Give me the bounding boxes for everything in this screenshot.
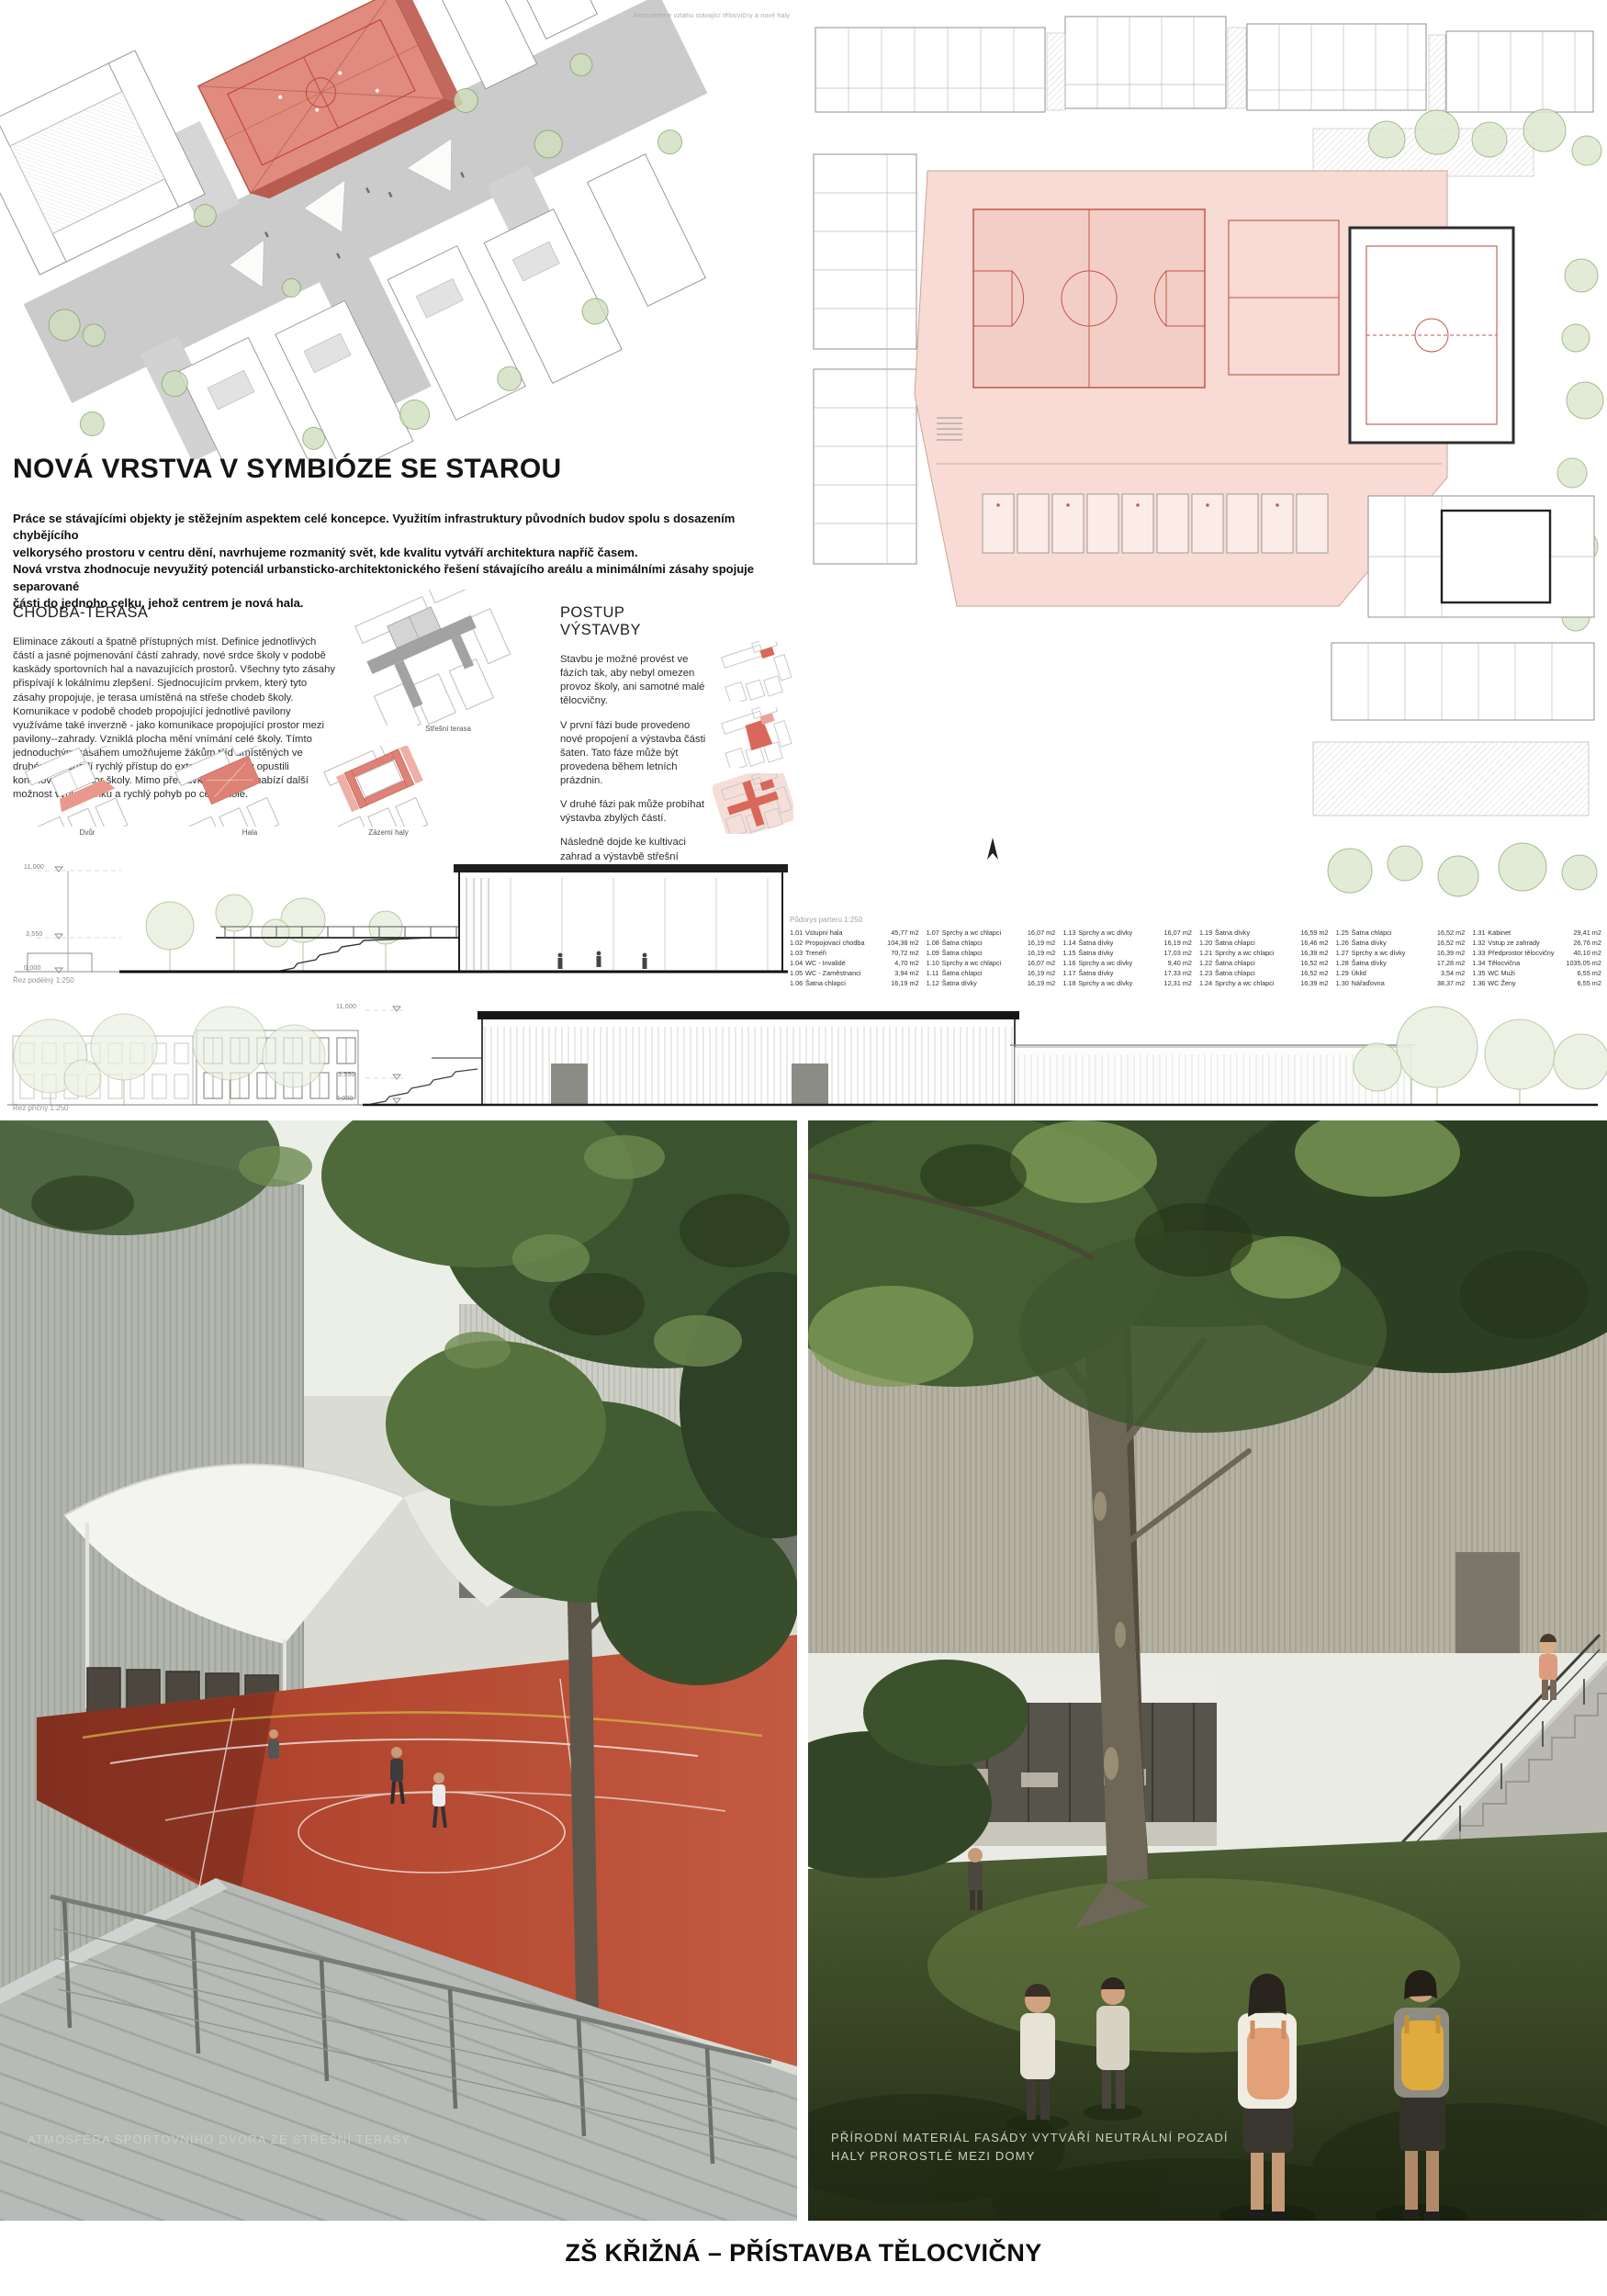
- section-longitudinal-drawing: [0, 843, 790, 990]
- room-id: 1.10: [927, 958, 942, 968]
- legend-room-row: 1.27 Sprchy a wc dívky 16,39 m2: [1336, 948, 1466, 958]
- render-right-caption-line1: PŘÍRODNÍ MATERIÁL FASÁDY VYTVÁŘÍ NEUTRÁL…: [831, 2129, 1290, 2147]
- room-id: 1.17: [1062, 968, 1078, 978]
- legend-room-row: 1.17 Šatna dívky 17,33 m2: [1062, 968, 1192, 978]
- room-id: 1.03: [790, 948, 805, 958]
- room-name: Šatna dívky: [1078, 948, 1163, 958]
- room-id: 1.25: [1336, 928, 1352, 938]
- room-name: Předprostor tělocvičny: [1488, 948, 1573, 958]
- legend-room-row: 1.34 Tělocvična 1035,05 m2: [1472, 958, 1601, 968]
- room-id: 1.28: [1336, 958, 1352, 968]
- room-area: 3,54 m2: [1441, 968, 1465, 978]
- room-area: 6,55 m2: [1578, 968, 1601, 978]
- room-name: Šatna dívky: [1078, 968, 1163, 978]
- room-name: Sprchy a wc dívky: [1078, 928, 1163, 938]
- diagram-label-hala: Hala: [213, 828, 287, 837]
- room-area: 6,55 m2: [1578, 978, 1601, 988]
- room-name: Vstup ze zahrady: [1488, 938, 1573, 948]
- room-area: 16,07 m2: [1028, 928, 1055, 938]
- legend-room-row: 1.33 Předprostor tělocvičny 40,10 m2: [1472, 948, 1601, 958]
- room-name: Úklid: [1352, 968, 1441, 978]
- room-area: 16,46 m2: [1300, 938, 1328, 948]
- legend-room-row: 1.13 Sprchy a wc dívky 16,07 m2: [1062, 928, 1192, 938]
- room-area: 16,19 m2: [1028, 968, 1055, 978]
- postup-paragraph: Stavbu je možné provést ve fázích tak, a…: [560, 653, 707, 709]
- legend-room-row: 1.04 WC - Invalidé 4,70 m2: [790, 958, 919, 968]
- room-area: 16,52 m2: [1437, 928, 1465, 938]
- room-name: Šatna chlapci: [942, 968, 1028, 978]
- postup-paragraph: V první fázi bude provedeno nové propoje…: [560, 719, 707, 789]
- room-area: 16,52 m2: [1300, 958, 1328, 968]
- legend-room-row: 1.31 Kabinet 29,41 m2: [1472, 928, 1601, 938]
- section-1-label: Řez podélný 1:250: [13, 976, 74, 985]
- diagram-label-zazemi: Zázemí haly: [347, 828, 430, 837]
- legend-room-row: 1.36 WC Ženy 6,55 m2: [1472, 978, 1601, 988]
- legend-rooms: 1.01 Vstupní hala 45,77 m2 1.02 Propojov…: [790, 928, 1601, 988]
- legend-room-row: 1.32 Vstup ze zahrady 26,76 m2: [1472, 938, 1601, 948]
- room-area: 104,38 m2: [887, 938, 918, 948]
- room-id: 1.19: [1199, 928, 1215, 938]
- diagram-zazemi-haly: [317, 746, 459, 827]
- room-area: 29,41 m2: [1574, 928, 1601, 938]
- room-area: 16,19 m2: [1028, 948, 1055, 958]
- legend-room-row: 1.06 Šatna chlapci 16,19 m2: [790, 978, 919, 988]
- legend-room-row: 1.30 Nářaďovna 38,37 m2: [1336, 978, 1466, 988]
- room-id: 1.32: [1472, 938, 1488, 948]
- floor-plan-drawing: [799, 0, 1607, 909]
- room-name: WC Ženy: [1488, 978, 1577, 988]
- room-name: Šatna chlapci: [805, 978, 891, 988]
- room-id: 1.27: [1336, 948, 1352, 958]
- room-id: 1.20: [1199, 938, 1215, 948]
- room-area: 16,07 m2: [1028, 958, 1055, 968]
- legend-room-row: 1.09 Šatna chlapci 16,19 m2: [927, 948, 1056, 958]
- legend-room-row: 1.16 Sprchy a wc dívky 9,40 m2: [1062, 958, 1192, 968]
- diagram-phase-2: [713, 707, 793, 768]
- diagram-phase-1: [713, 641, 793, 702]
- room-area: 16,19 m2: [891, 978, 918, 988]
- room-name: Sprchy a wc dívky: [1078, 978, 1163, 988]
- room-name: Šatna dívky: [1352, 958, 1437, 968]
- room-id: 1.31: [1472, 928, 1488, 938]
- legend-room-row: 1.25 Šatna chlapci 16,52 m2: [1336, 928, 1466, 938]
- chodba-heading: CHODBA-TERASA: [13, 604, 338, 622]
- level-3550-sec1: 3,550: [26, 931, 43, 938]
- section-transverse-drawing: [0, 999, 1607, 1117]
- level-0000-sec2: 0,000: [336, 1096, 354, 1102]
- legend-room-row: 1.24 Sprchy a wc chlapci 16,39 m2: [1199, 978, 1329, 988]
- legend-room-row: 1.26 Šatna dívky 16,52 m2: [1336, 938, 1466, 948]
- room-id: 1.33: [1472, 948, 1488, 958]
- room-id: 1.29: [1336, 968, 1352, 978]
- room-area: 16,59 m2: [1300, 928, 1328, 938]
- section-2-label: Řez příčný 1:250: [13, 1104, 68, 1112]
- room-area: 26,76 m2: [1574, 938, 1601, 948]
- room-id: 1.02: [790, 938, 805, 948]
- room-name: Šatna dívky: [1215, 928, 1300, 938]
- room-area: 16,39 m2: [1300, 948, 1328, 958]
- room-id: 1.14: [1062, 938, 1078, 948]
- legend-title: Půdorys parteru 1:250: [790, 916, 1601, 924]
- postup-heading: POSTUP VÝSTAVBY: [560, 604, 707, 639]
- room-id: 1.04: [790, 958, 805, 968]
- room-name: Sprchy a wc chlapci: [942, 958, 1028, 968]
- legend-room-row: 1.14 Šatna dívky 16,19 m2: [1062, 938, 1192, 948]
- room-id: 1.07: [927, 928, 942, 938]
- room-name: Sprchy a wc chlapci: [942, 928, 1028, 938]
- room-name: Sprchy a wc dívky: [1352, 948, 1437, 958]
- room-name: Šatna dívky: [1078, 938, 1163, 948]
- room-name: Šatna dívky: [942, 978, 1028, 988]
- axonometric-site-illustration: [0, 0, 799, 459]
- axon-annotation: Axonometrie vztahu stávající tělocvičny …: [632, 13, 790, 19]
- legend-room-row: 1.28 Šatna dívky 17,28 m2: [1336, 958, 1466, 968]
- room-name: Kabinet: [1488, 928, 1573, 938]
- room-id: 1.01: [790, 928, 805, 938]
- room-id: 1.23: [1199, 968, 1215, 978]
- legend-room-row: 1.12 Šatna dívky 16,19 m2: [927, 978, 1056, 988]
- room-name: Vstupní hala: [805, 928, 891, 938]
- legend-room-row: 1.10 Sprchy a wc chlapci 16,07 m2: [927, 958, 1056, 968]
- level-11000-sec1: 11,000: [24, 864, 44, 871]
- room-name: Tělocvična: [1488, 958, 1566, 968]
- room-area: 1035,05 m2: [1566, 958, 1601, 968]
- room-name: Šatna chlapci: [942, 938, 1028, 948]
- legend-room-row: 1.19 Šatna dívky 16,59 m2: [1199, 928, 1329, 938]
- room-area: 4,70 m2: [894, 958, 918, 968]
- room-area: 45,77 m2: [891, 928, 918, 938]
- room-area: 3,94 m2: [894, 968, 918, 978]
- room-area: 16,52 m2: [1437, 938, 1465, 948]
- room-name: Šatna chlapci: [1215, 968, 1300, 978]
- room-id: 1.34: [1472, 958, 1488, 968]
- legend-room-row: 1.21 Sprchy a wc chlapci 16,39 m2: [1199, 948, 1329, 958]
- room-name: Nářaďovna: [1352, 978, 1437, 988]
- room-name: Šatna chlapci: [942, 948, 1028, 958]
- room-name: Propojovací chodba: [805, 938, 887, 948]
- room-name: Šatna chlapci: [1215, 938, 1300, 948]
- legend-room-row: 1.35 WC Muži 6,55 m2: [1472, 968, 1601, 978]
- legend-room-row: 1.03 Trenéři 70,72 m2: [790, 948, 919, 958]
- legend-room-row: 1.08 Šatna chlapci 16,19 m2: [927, 938, 1056, 948]
- room-area: 40,10 m2: [1574, 948, 1601, 958]
- render-right-caption: PŘÍRODNÍ MATERIÁL FASÁDY VYTVÁŘÍ NEUTRÁL…: [831, 2129, 1290, 2166]
- room-id: 1.30: [1336, 978, 1352, 988]
- room-area: 38,37 m2: [1437, 978, 1465, 988]
- legend-room-row: 1.22 Šatna chlapci 16,52 m2: [1199, 958, 1329, 968]
- room-name: Sprchy a wc chlapci: [1215, 978, 1300, 988]
- room-id: 1.16: [1062, 958, 1078, 968]
- room-id: 1.22: [1199, 958, 1215, 968]
- room-area: 16,19 m2: [1028, 978, 1055, 988]
- room-area: 16,39 m2: [1437, 948, 1465, 958]
- room-area: 70,72 m2: [891, 948, 918, 958]
- room-id: 1.36: [1472, 978, 1488, 988]
- board-footer-title: ZŠ KŘIŽNÁ – PŘÍSTAVBA TĚLOCVIČNY: [0, 2239, 1607, 2268]
- level-3550-sec2: 3,550: [338, 1072, 355, 1078]
- room-id: 1.06: [790, 978, 805, 988]
- room-name: Trenéři: [805, 948, 891, 958]
- room-area: 16,39 m2: [1300, 978, 1328, 988]
- legend-room-row: 1.02 Propojovací chodba 104,38 m2: [790, 938, 919, 948]
- legend-room-row: 1.18 Sprchy a wc dívky 12,31 m2: [1062, 978, 1192, 988]
- legend-room-row: 1.15 Šatna dívky 17,03 m2: [1062, 948, 1192, 958]
- room-id: 1.12: [927, 978, 942, 988]
- room-id: 1.15: [1062, 948, 1078, 958]
- room-name: Šatna chlapci: [1352, 928, 1437, 938]
- diagram-phase-3: [713, 773, 793, 834]
- room-area: 17,03 m2: [1164, 948, 1192, 958]
- room-name: Sprchy a wc chlapci: [1215, 948, 1300, 958]
- legend-room-row: 1.20 Šatna chlapci 16,46 m2: [1199, 938, 1329, 948]
- room-id: 1.24: [1199, 978, 1215, 988]
- level-11000-sec2: 11,000: [336, 1004, 356, 1010]
- room-id: 1.09: [927, 948, 942, 958]
- room-id: 1.18: [1062, 978, 1078, 988]
- room-area: 17,33 m2: [1164, 968, 1192, 978]
- room-id: 1.05: [790, 968, 805, 978]
- room-id: 1.13: [1062, 928, 1078, 938]
- diagram-hala: [170, 746, 308, 827]
- room-legend: Půdorys parteru 1:250 1.01 Vstupní hala …: [790, 916, 1601, 988]
- diagram-label-dvur: Dvůr: [51, 828, 124, 837]
- room-name: Sprchy a wc dívky: [1078, 958, 1167, 968]
- room-area: 17,28 m2: [1437, 958, 1465, 968]
- room-name: Šatna dívky: [1352, 938, 1437, 948]
- room-name: WC - Invalidé: [805, 958, 894, 968]
- render-sports-court: ATMOSFÉRA SPORTOVNÍHO DVORA ZE STŘEŠNÍ T…: [0, 1120, 797, 2221]
- room-name: WC Muži: [1488, 968, 1577, 978]
- legend-room-row: 1.07 Sprchy a wc chlapci 16,07 m2: [927, 928, 1056, 938]
- diagram-stresni-terasa: [347, 590, 522, 726]
- room-id: 1.26: [1336, 938, 1352, 948]
- render-garden: PŘÍRODNÍ MATERIÁL FASÁDY VYTVÁŘÍ NEUTRÁL…: [808, 1120, 1607, 2221]
- room-area: 16,07 m2: [1164, 928, 1192, 938]
- legend-room-row: 1.05 WC - Zaměstnanci 3,94 m2: [790, 968, 919, 978]
- room-area: 16,52 m2: [1300, 968, 1328, 978]
- room-name: Šatna chlapci: [1215, 958, 1300, 968]
- room-id: 1.21: [1199, 948, 1215, 958]
- room-id: 1.35: [1472, 968, 1488, 978]
- presentation-board: Axonometrie vztahu stávající tělocvičny …: [0, 0, 1607, 2296]
- legend-room-row: 1.23 Šatna chlapci 16,52 m2: [1199, 968, 1329, 978]
- north-arrow-icon: [987, 838, 998, 860]
- legend-room-row: 1.29 Úklid 3,54 m2: [1336, 968, 1466, 978]
- room-area: 12,31 m2: [1164, 978, 1192, 988]
- diagram-label-stresni: Střešní terasa: [393, 725, 503, 733]
- postup-paragraph: V druhé fázi pak může probíhat výstavba …: [560, 798, 707, 826]
- room-area: 16,19 m2: [1028, 938, 1055, 948]
- render-right-caption-line2: HALY PROROSTLÉ MEZI DOMY: [831, 2147, 1290, 2166]
- room-area: 9,40 m2: [1168, 958, 1192, 968]
- level-0000-sec1: 0,000: [24, 965, 41, 972]
- render-left-caption: ATMOSFÉRA SPORTOVNÍHO DVORA ZE STŘEŠNÍ T…: [28, 2133, 410, 2146]
- room-id: 1.11: [927, 968, 942, 978]
- room-name: WC - Zaměstnanci: [805, 968, 894, 978]
- room-area: 16,19 m2: [1164, 938, 1192, 948]
- legend-room-row: 1.11 Šatna chlapci 16,19 m2: [927, 968, 1056, 978]
- page-title: NOVÁ VRSTVA V SYMBIÓZE SE STAROU: [13, 454, 561, 485]
- legend-room-row: 1.01 Vstupní hala 45,77 m2: [790, 928, 919, 938]
- diagram-dvur: [13, 746, 164, 827]
- room-id: 1.08: [927, 938, 942, 948]
